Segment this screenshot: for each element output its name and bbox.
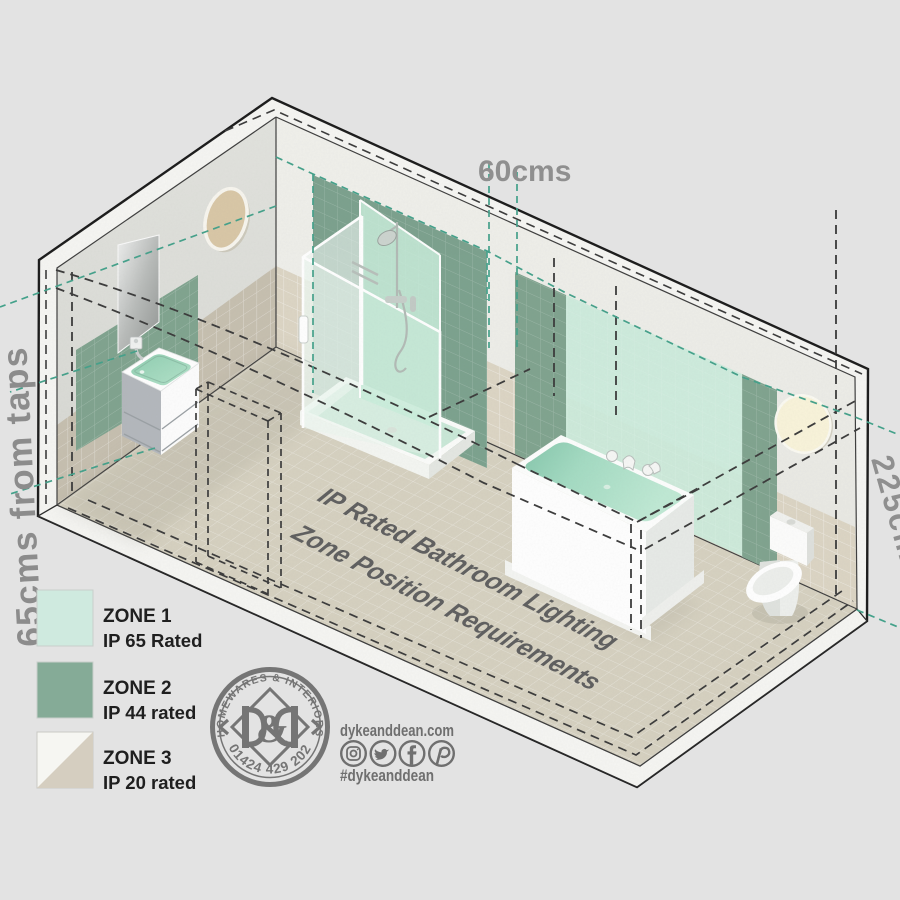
svg-text:ZONE 2: ZONE 2 [103,678,172,699]
svg-text:IP 65 Rated: IP 65 Rated [103,630,202,651]
svg-text:ZONE 1: ZONE 1 [103,606,172,627]
svg-text:60cms: 60cms [478,155,571,188]
svg-text:IP 44 rated: IP 44 rated [103,702,196,723]
svg-text:&: & [256,706,289,751]
svg-text:ZONE 3: ZONE 3 [103,748,172,769]
svg-text:dykeanddean.com: dykeanddean.com [340,721,454,740]
svg-text:#dykeanddean: #dykeanddean [340,766,434,785]
svg-text:IP 20 rated: IP 20 rated [103,772,196,793]
